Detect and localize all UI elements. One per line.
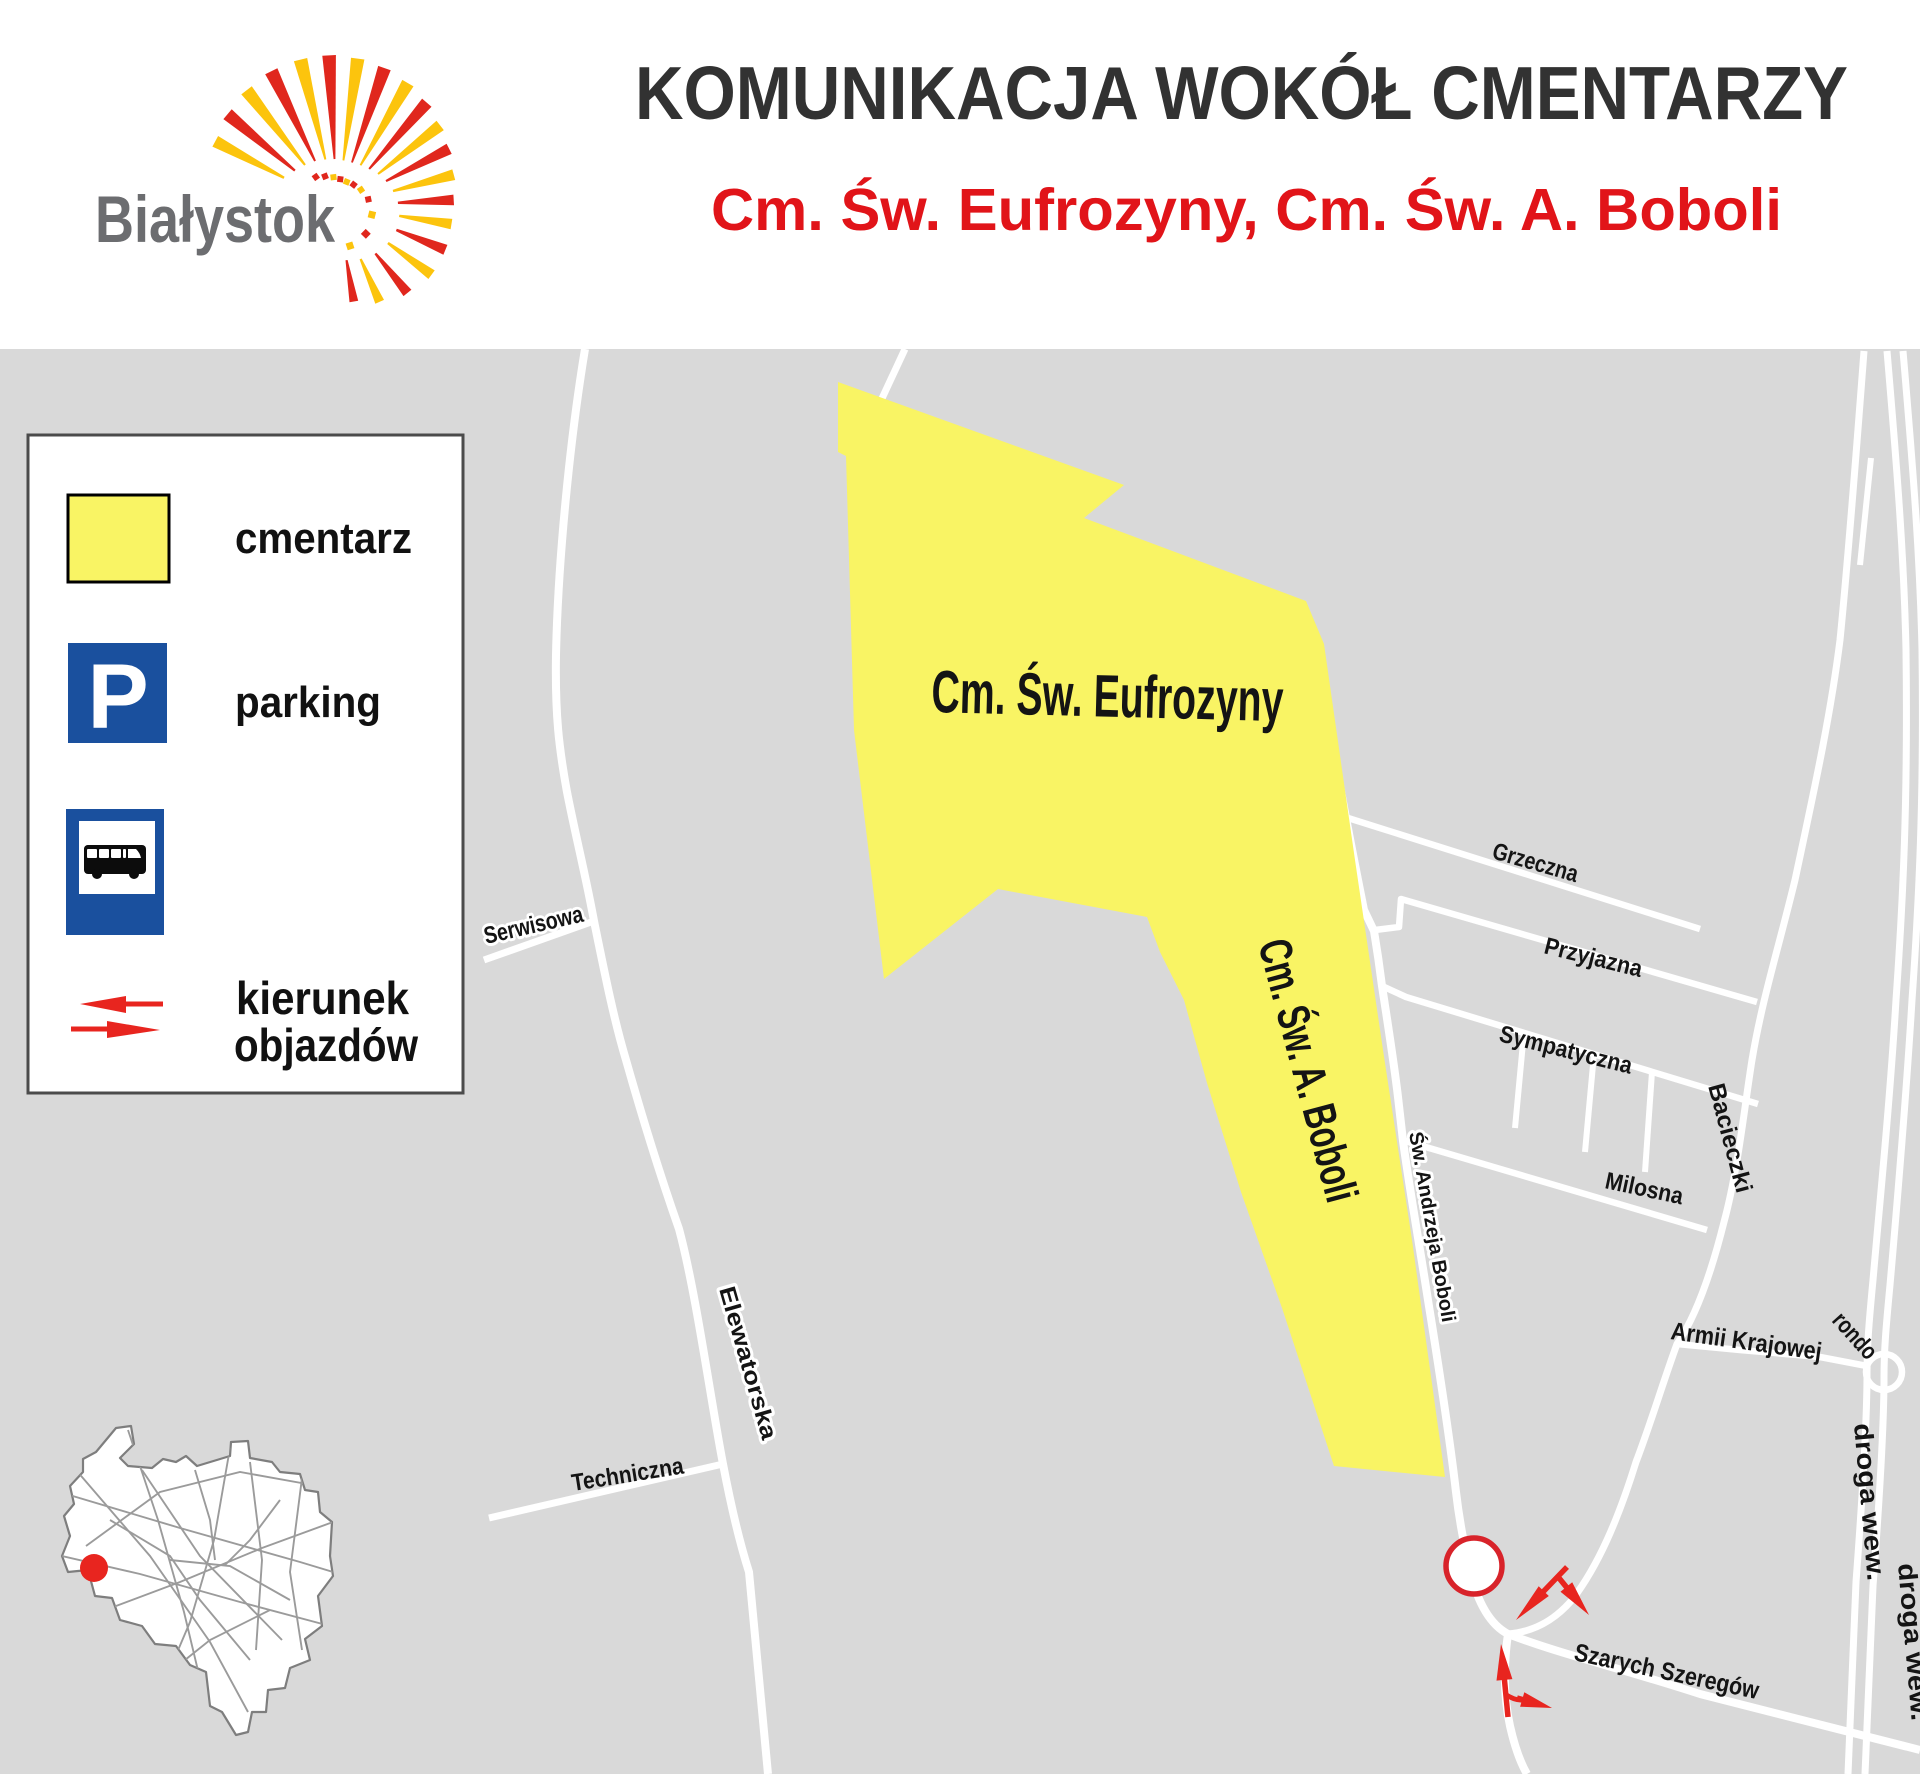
svg-text:Białystok: Białystok [95, 182, 335, 256]
svg-text:parking: parking [235, 678, 381, 727]
svg-text:KOMUNIKACJA WOKÓŁ CMENTARZY: KOMUNIKACJA WOKÓŁ CMENTARZY [635, 51, 1848, 135]
svg-text:kierunek: kierunek [236, 972, 409, 1024]
svg-text:objazdów: objazdów [234, 1019, 418, 1071]
svg-text:cmentarz: cmentarz [235, 514, 412, 563]
svg-text:Cm. Św. Eufrozyny: Cm. Św. Eufrozyny [931, 658, 1285, 734]
svg-text:Cm. Św. Eufrozyny, Cm. Św. A.: Cm. Św. Eufrozyny, Cm. Św. A. Boboli [711, 177, 1782, 243]
svg-text:P: P [87, 646, 148, 748]
